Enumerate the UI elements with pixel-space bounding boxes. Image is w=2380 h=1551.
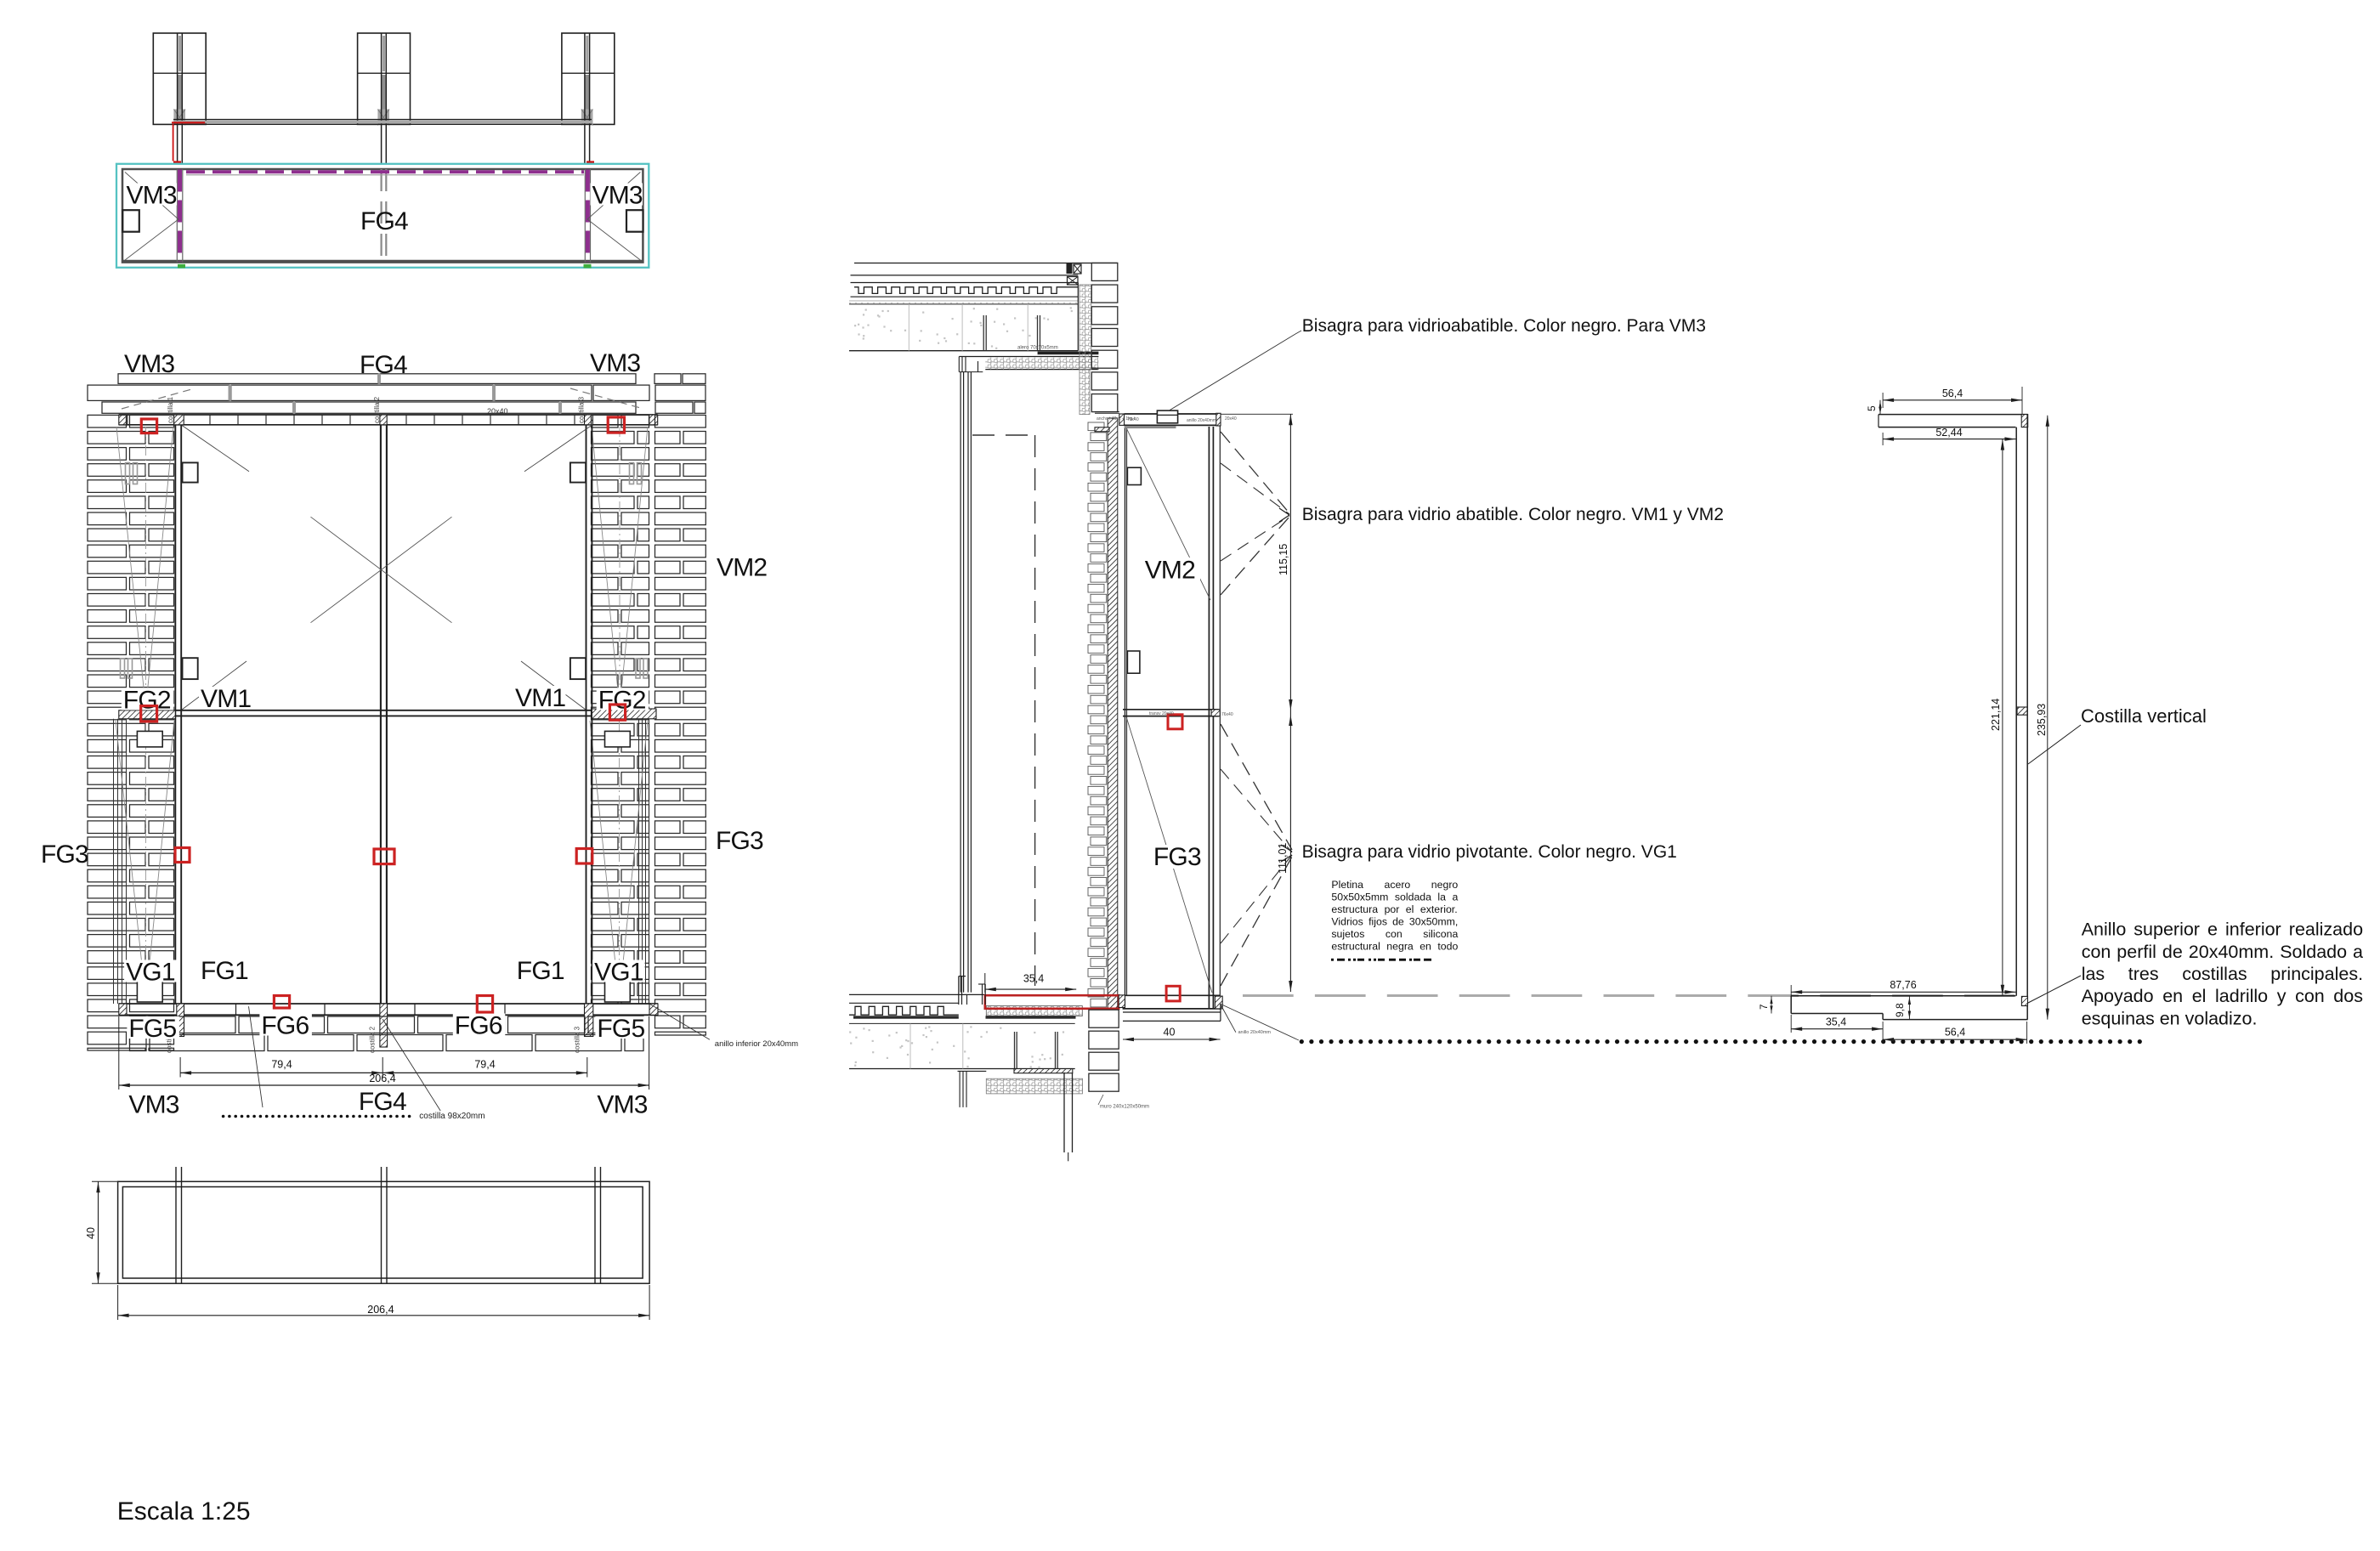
svg-text:20x40mm.: 20x40mm. — [2189, 942, 2274, 962]
svg-text:56,4: 56,4 — [1945, 1027, 1965, 1039]
svg-text:76x40: 76x40 — [1221, 712, 1233, 717]
svg-text:206,4: 206,4 — [369, 1073, 395, 1084]
svg-text:soldada: soldada — [1395, 891, 1431, 903]
svg-text:negro: negro — [1431, 879, 1459, 891]
svg-text:20x40: 20x40 — [487, 407, 508, 416]
svg-text:111,01: 111,01 — [1277, 843, 1289, 874]
svg-text:FG4: FG4 — [360, 351, 407, 379]
svg-text:ladrillo: ladrillo — [2215, 986, 2268, 1006]
svg-text:principales.: principales. — [2270, 964, 2363, 984]
svg-text:VM3: VM3 — [590, 349, 640, 377]
svg-text:FG5: FG5 — [597, 1015, 644, 1043]
svg-text:Apoyado: Apoyado — [2082, 986, 2154, 1006]
svg-text:costilla 2: costilla 2 — [373, 396, 381, 423]
svg-text:70x40: 70x40 — [1127, 417, 1139, 422]
svg-text:de: de — [2162, 942, 2183, 962]
svg-text:221,14: 221,14 — [1990, 699, 2002, 731]
svg-text:la: la — [1437, 891, 1446, 903]
svg-text:Anillo: Anillo — [2082, 920, 2127, 940]
svg-text:anillo inferior 20x40mm: anillo inferior 20x40mm — [715, 1039, 798, 1049]
svg-text:muro 240x120x50mm: muro 240x120x50mm — [1100, 1105, 1149, 1110]
svg-text:79,4: 79,4 — [271, 1059, 292, 1071]
svg-text:VM2: VM2 — [717, 554, 767, 582]
svg-text:tres: tres — [2128, 964, 2159, 984]
svg-text:y: y — [2277, 986, 2286, 1006]
svg-text:anillo 20x40mm: anillo 20x40mm — [1187, 418, 1216, 423]
svg-text:Vidrios: Vidrios — [1331, 915, 1363, 927]
svg-text:costillas: costillas — [2182, 964, 2247, 984]
svg-text:5: 5 — [1866, 405, 1878, 411]
svg-text:e: e — [2207, 920, 2218, 940]
svg-text:Bisagra para vidrio pivotante.: Bisagra para vidrio pivotante. Color neg… — [1302, 842, 1677, 862]
svg-text:por: por — [1385, 903, 1400, 915]
svg-text:dos: dos — [2333, 986, 2363, 1006]
svg-text:FG2: FG2 — [123, 687, 171, 715]
svg-text:las: las — [2082, 964, 2105, 984]
svg-text:a: a — [2353, 942, 2363, 962]
svg-text:79,4: 79,4 — [474, 1059, 495, 1071]
svg-text:52,44: 52,44 — [1935, 427, 1962, 439]
svg-text:VM2: VM2 — [1145, 557, 1195, 585]
svg-text:FG3: FG3 — [1153, 843, 1201, 871]
svg-text:el: el — [1406, 903, 1414, 915]
svg-text:VM3: VM3 — [597, 1091, 647, 1119]
svg-text:perfil: perfil — [2116, 942, 2156, 962]
svg-text:transv 20x40: transv 20x40 — [1149, 711, 1174, 716]
svg-text:Costilla vertical: Costilla vertical — [2081, 705, 2207, 727]
svg-text:costilla 2: costilla 2 — [369, 1026, 377, 1053]
svg-text:FG6: FG6 — [261, 1012, 309, 1040]
svg-text:estructural: estructural — [1331, 940, 1380, 952]
svg-text:superior: superior — [2133, 920, 2200, 940]
svg-text:costilla 3: costilla 3 — [574, 1026, 581, 1053]
svg-text:inferior: inferior — [2225, 920, 2281, 940]
svg-text:FG4: FG4 — [359, 1088, 406, 1116]
svg-text:anillo 20x40mm: anillo 20x40mm — [1238, 1030, 1272, 1035]
svg-text:7: 7 — [1759, 1005, 1770, 1010]
svg-text:acero: acero — [1385, 879, 1411, 891]
svg-text:VG1: VG1 — [126, 959, 175, 987]
svg-text:silicona: silicona — [1423, 928, 1458, 940]
svg-text:con: con — [2295, 986, 2325, 1006]
svg-text:exterior.: exterior. — [1420, 903, 1458, 915]
svg-text:9,8: 9,8 — [1894, 1003, 1906, 1017]
svg-text:50x50x5mm: 50x50x5mm — [1331, 891, 1388, 903]
svg-text:costilla 98x20mm: costilla 98x20mm — [419, 1112, 484, 1121]
svg-text:Soldado: Soldado — [2280, 942, 2347, 962]
svg-text:VG1: VG1 — [594, 959, 643, 987]
svg-text:206,4: 206,4 — [367, 1304, 394, 1316]
svg-text:Pletina: Pletina — [1331, 879, 1363, 891]
svg-text:20x40: 20x40 — [1225, 416, 1237, 422]
svg-text:negra: negra — [1386, 940, 1414, 952]
svg-text:todo: todo — [1437, 940, 1458, 952]
svg-text:de: de — [1392, 915, 1404, 927]
svg-text:FG1: FG1 — [517, 957, 564, 985]
svg-text:con: con — [2082, 942, 2111, 962]
svg-text:sujetos: sujetos — [1331, 928, 1364, 940]
svg-text:FG1: FG1 — [201, 957, 248, 985]
svg-text:235,93: 235,93 — [2036, 704, 2048, 736]
svg-text:FG6: FG6 — [455, 1012, 502, 1040]
svg-text:estructura: estructura — [1331, 903, 1378, 915]
svg-text:Escala 1:25: Escala 1:25 — [117, 1497, 251, 1526]
svg-text:VM1: VM1 — [201, 685, 251, 713]
svg-text:56,4: 56,4 — [1942, 388, 1963, 399]
svg-text:FG4: FG4 — [360, 207, 408, 235]
svg-text:realizado: realizado — [2289, 920, 2363, 940]
svg-text:fijos: fijos — [1368, 915, 1387, 927]
svg-text:FG2: FG2 — [598, 687, 646, 715]
svg-text:FG5: FG5 — [128, 1015, 176, 1043]
svg-text:esquinas en voladizo.: esquinas en voladizo. — [2082, 1008, 2258, 1028]
svg-text:30x50mm,: 30x50mm, — [1409, 915, 1458, 927]
svg-text:alero 70x70x5mm: alero 70x70x5mm — [1017, 346, 1058, 351]
svg-text:costilla 3: costilla 3 — [578, 396, 586, 423]
svg-text:VM3: VM3 — [592, 182, 643, 210]
svg-text:en: en — [1419, 940, 1431, 952]
svg-text:87,76: 87,76 — [1890, 979, 1916, 991]
svg-text:40: 40 — [1164, 1027, 1176, 1039]
svg-text:a: a — [1453, 891, 1459, 903]
svg-text:VM1: VM1 — [515, 684, 565, 712]
svg-text:VM3: VM3 — [127, 182, 177, 210]
svg-text:en: en — [2162, 986, 2183, 1006]
svg-text:VM3: VM3 — [128, 1091, 178, 1119]
svg-text:35,4: 35,4 — [1826, 1016, 1846, 1028]
svg-text:Bisagra para vidrioabatible. C: Bisagra para vidrioabatible. Color negro… — [1302, 316, 1706, 336]
svg-text:FG3: FG3 — [716, 827, 763, 855]
svg-text:115,15: 115,15 — [1278, 544, 1289, 575]
svg-text:35,4: 35,4 — [1023, 973, 1044, 985]
svg-text:FG3: FG3 — [41, 841, 88, 869]
svg-text:el: el — [2192, 986, 2207, 1006]
svg-text:40: 40 — [85, 1227, 97, 1239]
svg-text:costilla 1: costilla 1 — [167, 396, 174, 423]
svg-text:con: con — [1385, 928, 1402, 940]
svg-text:Bisagra para vidrio abatible.: Bisagra para vidrio abatible. Color negr… — [1302, 505, 1724, 524]
